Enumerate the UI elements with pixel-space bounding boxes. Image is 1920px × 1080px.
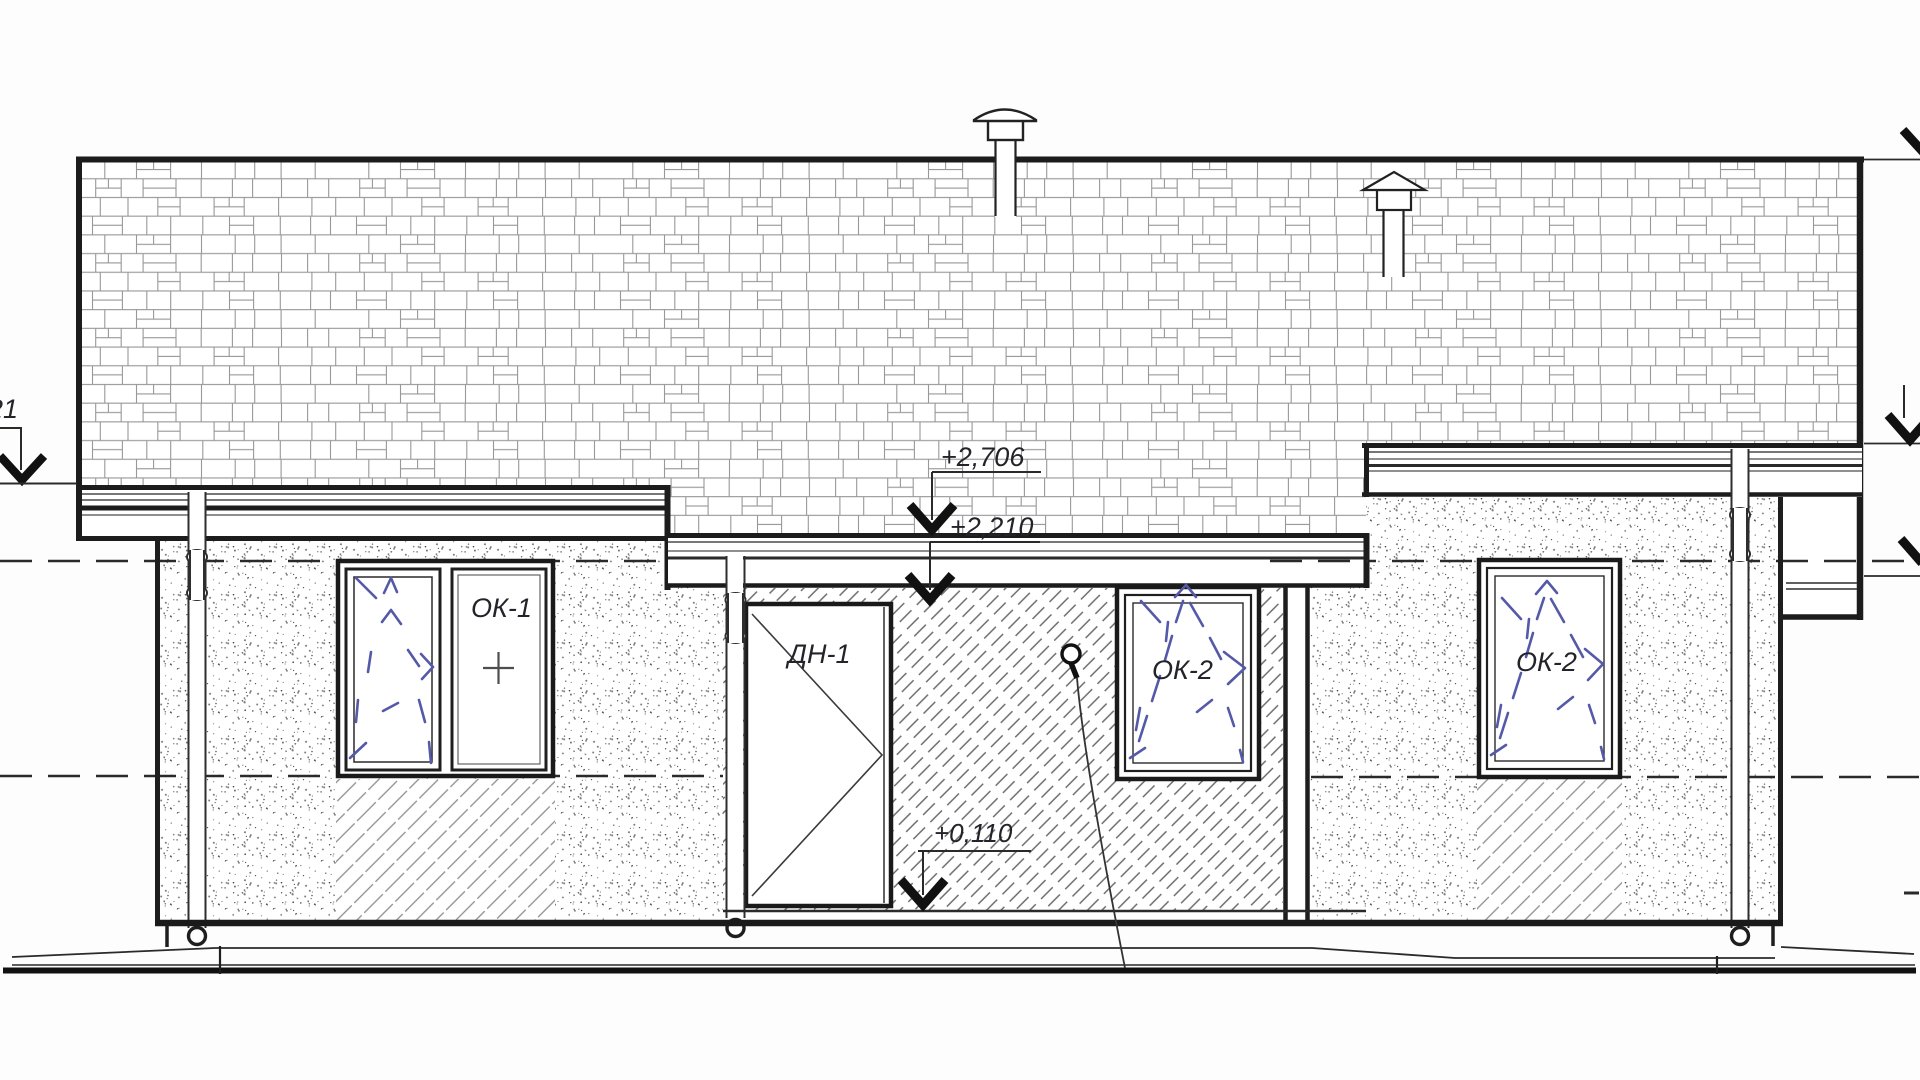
svg-text:+2,210: +2,210 (950, 512, 1033, 542)
svg-text:21: 21 (0, 394, 18, 424)
svg-text:ОК-1: ОК-1 (471, 593, 532, 623)
svg-text:ОК-2: ОК-2 (1152, 655, 1213, 685)
svg-text:ОК-2: ОК-2 (1516, 647, 1577, 677)
svg-text:+2,706: +2,706 (941, 442, 1025, 472)
svg-text:+0,110: +0,110 (934, 818, 1013, 848)
svg-text:ДН-1: ДН-1 (785, 639, 851, 669)
